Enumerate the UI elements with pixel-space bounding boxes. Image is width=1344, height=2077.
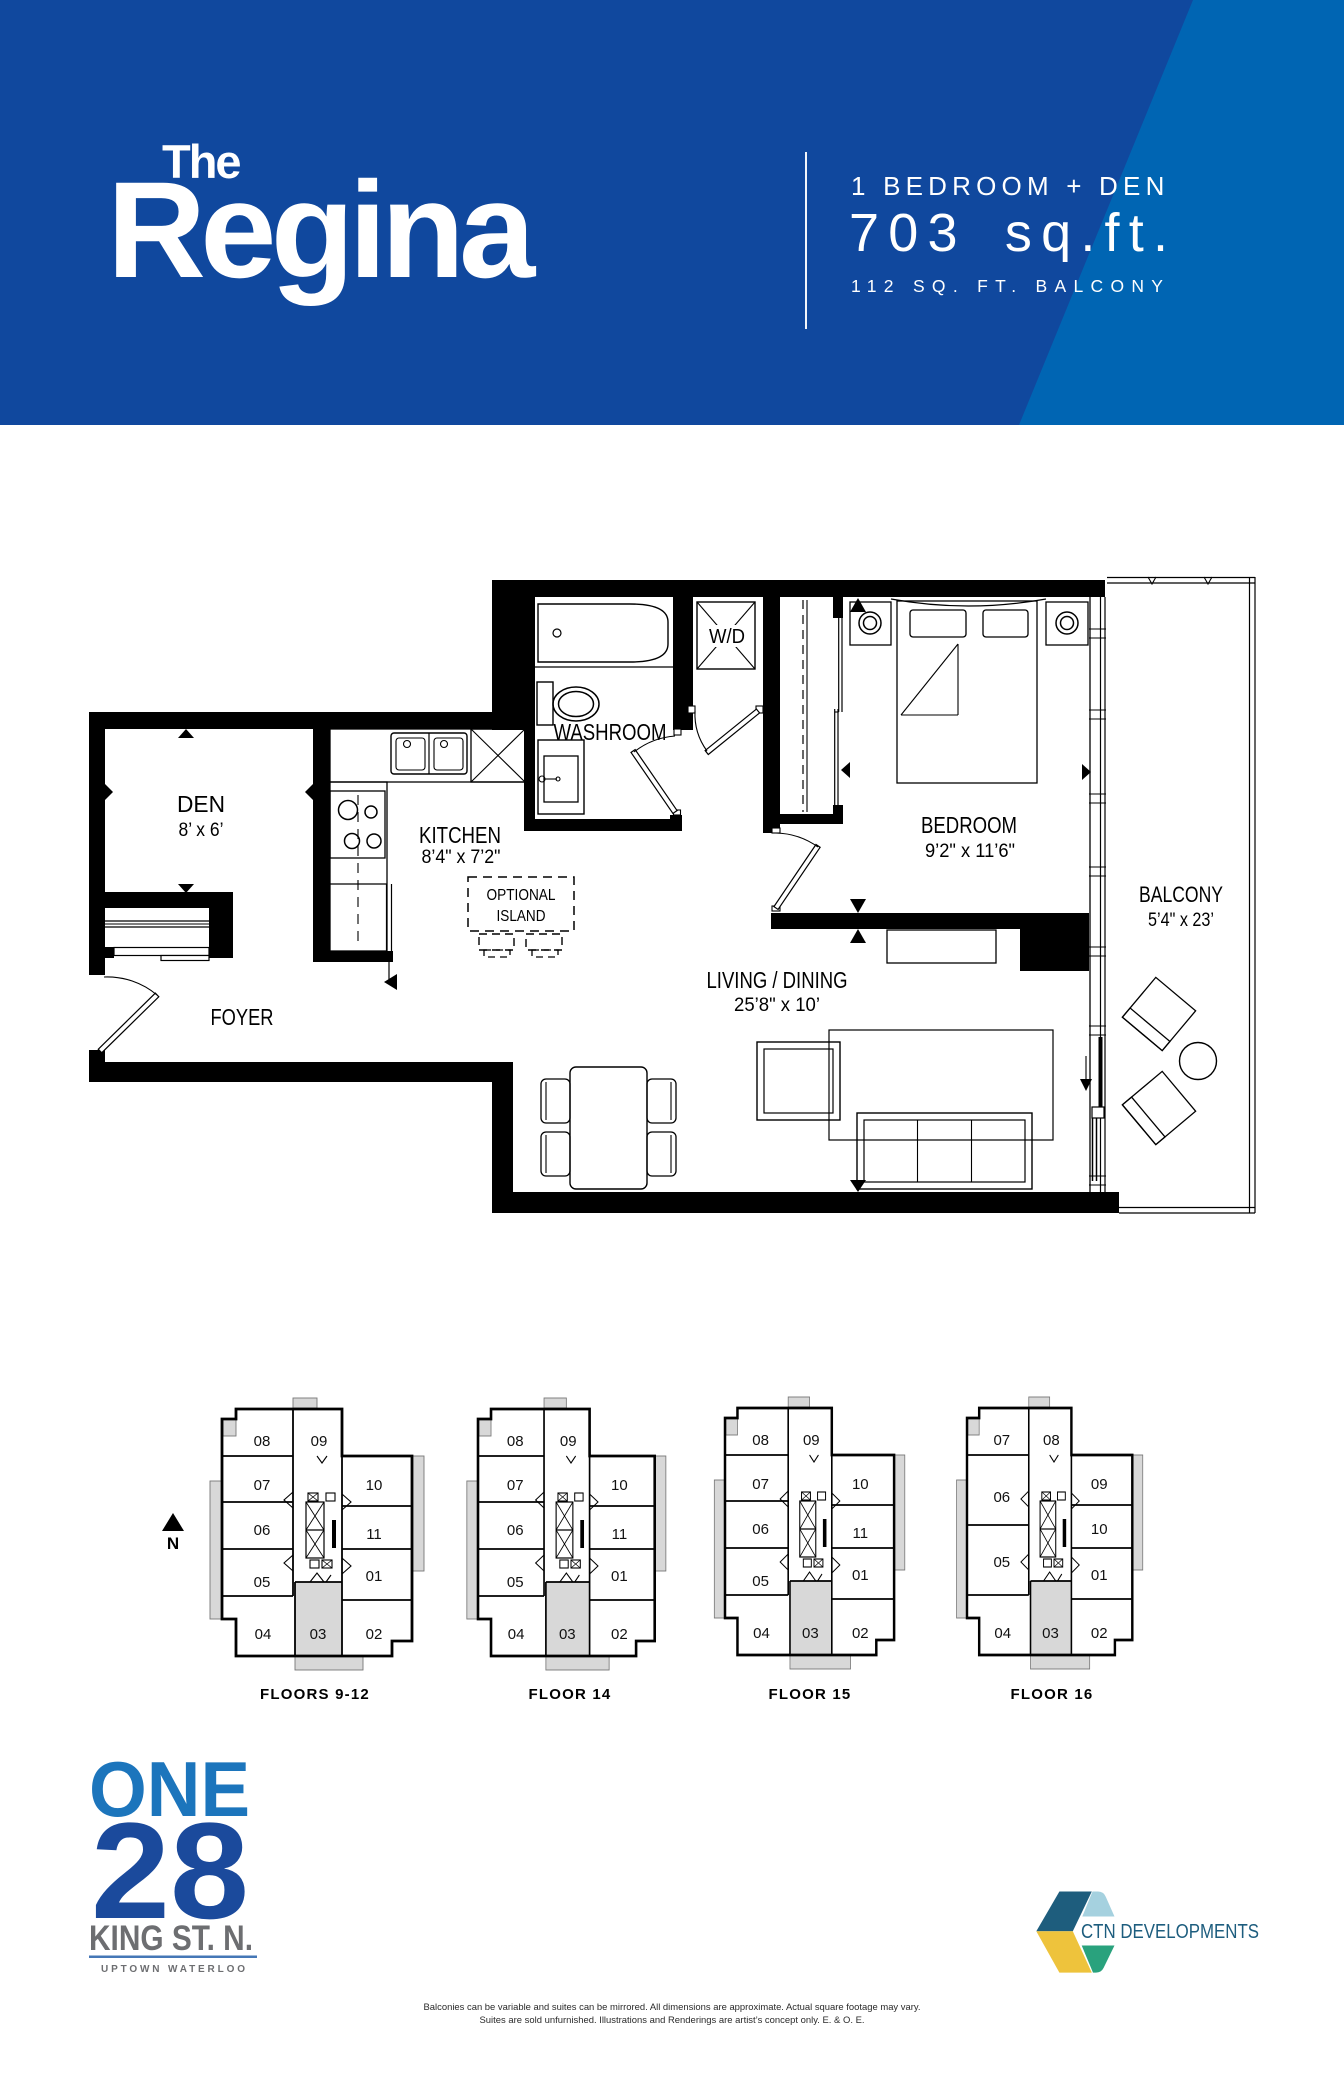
svg-text:08: 08 xyxy=(752,1432,769,1449)
svg-text:11: 11 xyxy=(853,1525,869,1542)
svg-text:Balconies can be variable and: Balconies can be variable and suites can… xyxy=(424,2002,921,2013)
svg-text:BALCONY: BALCONY xyxy=(1139,882,1223,907)
svg-text:04: 04 xyxy=(255,1626,272,1643)
svg-text:08: 08 xyxy=(254,1433,271,1450)
svg-text:05: 05 xyxy=(752,1573,769,1590)
svg-text:11: 11 xyxy=(366,1526,382,1543)
svg-text:UPTOWN WATERLOO: UPTOWN WATERLOO xyxy=(101,1964,245,1975)
svg-text:8’ x 6’: 8’ x 6’ xyxy=(179,820,224,841)
svg-text:07: 07 xyxy=(507,1477,524,1494)
svg-text:FLOOR 16: FLOOR 16 xyxy=(1011,1686,1094,1703)
svg-text:09: 09 xyxy=(803,1432,820,1449)
svg-text:09: 09 xyxy=(1091,1476,1108,1493)
svg-text:FLOORS 9-12: FLOORS 9-12 xyxy=(260,1686,370,1703)
svg-text:KITCHEN: KITCHEN xyxy=(419,822,501,848)
svg-text:07: 07 xyxy=(752,1476,769,1493)
svg-text:10: 10 xyxy=(611,1477,628,1494)
svg-text:01: 01 xyxy=(366,1568,383,1585)
svg-text:FLOOR 15: FLOOR 15 xyxy=(769,1686,852,1703)
svg-text:03: 03 xyxy=(1042,1625,1059,1642)
svg-text:08: 08 xyxy=(1043,1432,1060,1449)
svg-text:01: 01 xyxy=(1091,1567,1108,1584)
svg-text:11: 11 xyxy=(612,1526,628,1543)
svg-text:W/D: W/D xyxy=(709,626,745,648)
svg-text:DEN: DEN xyxy=(177,791,225,817)
svg-text:ISLAND: ISLAND xyxy=(497,908,546,925)
svg-text:03: 03 xyxy=(802,1625,819,1642)
svg-text:01: 01 xyxy=(611,1568,628,1585)
svg-text:06: 06 xyxy=(752,1521,769,1538)
svg-text:02: 02 xyxy=(366,1626,383,1643)
svg-text:Suites are sold unfurnished. I: Suites are sold unfurnished. Illustratio… xyxy=(480,2015,865,2026)
svg-text:03: 03 xyxy=(559,1626,576,1643)
svg-text:09: 09 xyxy=(311,1433,328,1450)
svg-text:06: 06 xyxy=(993,1489,1010,1506)
svg-text:09: 09 xyxy=(560,1433,577,1450)
svg-text:10: 10 xyxy=(366,1477,383,1494)
svg-text:07: 07 xyxy=(254,1477,271,1494)
svg-text:07: 07 xyxy=(993,1432,1010,1449)
svg-text:02: 02 xyxy=(611,1626,628,1643)
svg-text:04: 04 xyxy=(994,1625,1011,1642)
svg-text:FOYER: FOYER xyxy=(211,1004,274,1030)
svg-text:OPTIONAL: OPTIONAL xyxy=(487,887,556,904)
svg-text:10: 10 xyxy=(1091,1521,1108,1538)
svg-text:05: 05 xyxy=(254,1574,271,1591)
svg-text:05: 05 xyxy=(993,1554,1010,1571)
svg-text:02: 02 xyxy=(1091,1625,1108,1642)
svg-text:8’4" x 7’2": 8’4" x 7’2" xyxy=(422,847,501,868)
svg-text:06: 06 xyxy=(254,1522,271,1539)
svg-text:BEDROOM: BEDROOM xyxy=(921,812,1017,838)
svg-text:25’8" x 10’: 25’8" x 10’ xyxy=(734,995,820,1016)
svg-text:N: N xyxy=(167,1534,179,1553)
svg-text:05: 05 xyxy=(507,1574,524,1591)
svg-text:9’2" x 11’6": 9’2" x 11’6" xyxy=(925,841,1015,862)
svg-text:WASHROOM: WASHROOM xyxy=(554,719,667,745)
svg-text:FLOOR 14: FLOOR 14 xyxy=(529,1686,612,1703)
svg-text:KING ST. N.: KING ST. N. xyxy=(89,1919,253,1958)
svg-text:LIVING / DINING: LIVING / DINING xyxy=(707,967,848,993)
svg-text:01: 01 xyxy=(852,1567,869,1584)
svg-text:06: 06 xyxy=(507,1522,524,1539)
svg-text:CTN DEVELOPMENTS: CTN DEVELOPMENTS xyxy=(1081,1921,1259,1943)
svg-text:5’4" x 23’: 5’4" x 23’ xyxy=(1148,910,1214,931)
svg-text:04: 04 xyxy=(508,1626,525,1643)
svg-text:02: 02 xyxy=(852,1625,869,1642)
svg-text:04: 04 xyxy=(753,1625,770,1642)
svg-text:03: 03 xyxy=(310,1626,327,1643)
svg-text:08: 08 xyxy=(507,1433,524,1450)
svg-text:10: 10 xyxy=(852,1476,869,1493)
